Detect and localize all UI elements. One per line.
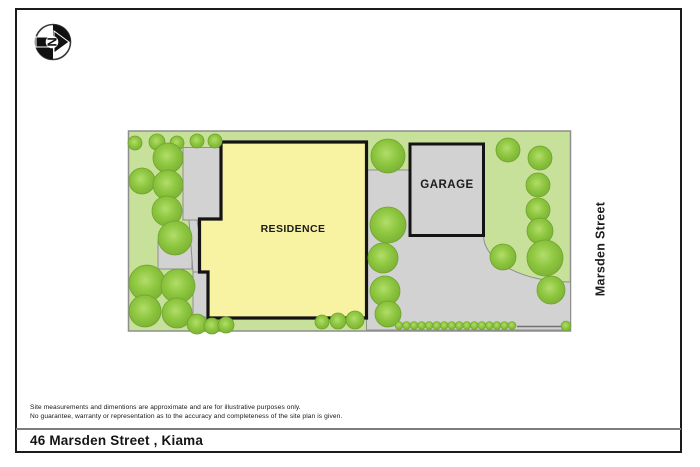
tree [128, 136, 142, 150]
tree [218, 317, 234, 333]
tree [129, 168, 155, 194]
disclaimer-text: Site measurements and dimentions are app… [30, 403, 342, 421]
hedge-bush [418, 322, 426, 330]
hedge-bush [448, 322, 456, 330]
tree [346, 311, 364, 329]
site-plan-drawing: RESIDENCE GARAGE Marsden Street [0, 0, 700, 467]
tree [204, 318, 220, 334]
tree [526, 173, 550, 197]
residence-label: RESIDENCE [261, 223, 326, 235]
tree [158, 221, 192, 255]
address-title: 46 Marsden Street , Kiama [30, 433, 203, 448]
hedge-bush [561, 321, 571, 331]
hedge-bush [403, 322, 411, 330]
disclaimer-line-1: Site measurements and dimentions are app… [30, 403, 342, 412]
hedge-bush [463, 322, 471, 330]
hedge-bush [493, 322, 501, 330]
footer-separator [16, 428, 681, 430]
hedge-bush [508, 322, 516, 330]
tree [368, 243, 398, 273]
tree [527, 240, 563, 276]
tree [190, 134, 204, 148]
hedge-bush [455, 322, 463, 330]
tree [153, 170, 183, 200]
tree [490, 244, 516, 270]
tree [315, 315, 329, 329]
site-plan-page: N RESIDENCE GARAGE Marsden Street Site m… [0, 0, 700, 467]
hedge-bush [425, 322, 433, 330]
tree [129, 295, 161, 327]
tree [330, 313, 346, 329]
hedge-bush [395, 322, 403, 330]
tree [496, 138, 520, 162]
hedge-bush [470, 322, 478, 330]
tree [371, 139, 405, 173]
patio-1 [183, 148, 222, 221]
hedge-bush [433, 322, 441, 330]
patio-2 [193, 272, 207, 317]
tree [528, 146, 552, 170]
hedge-bush [478, 322, 486, 330]
tree [370, 207, 406, 243]
tree [153, 143, 183, 173]
garage-label: GARAGE [420, 179, 473, 191]
hedge-bush [500, 322, 508, 330]
street-name-label: Marsden Street [593, 201, 607, 296]
tree [537, 276, 565, 304]
tree [208, 134, 222, 148]
hedge-bush [485, 322, 493, 330]
hedge-bush [440, 322, 448, 330]
disclaimer-line-2: No guarantee, warranty or representation… [30, 412, 342, 421]
hedge-bush [410, 322, 418, 330]
